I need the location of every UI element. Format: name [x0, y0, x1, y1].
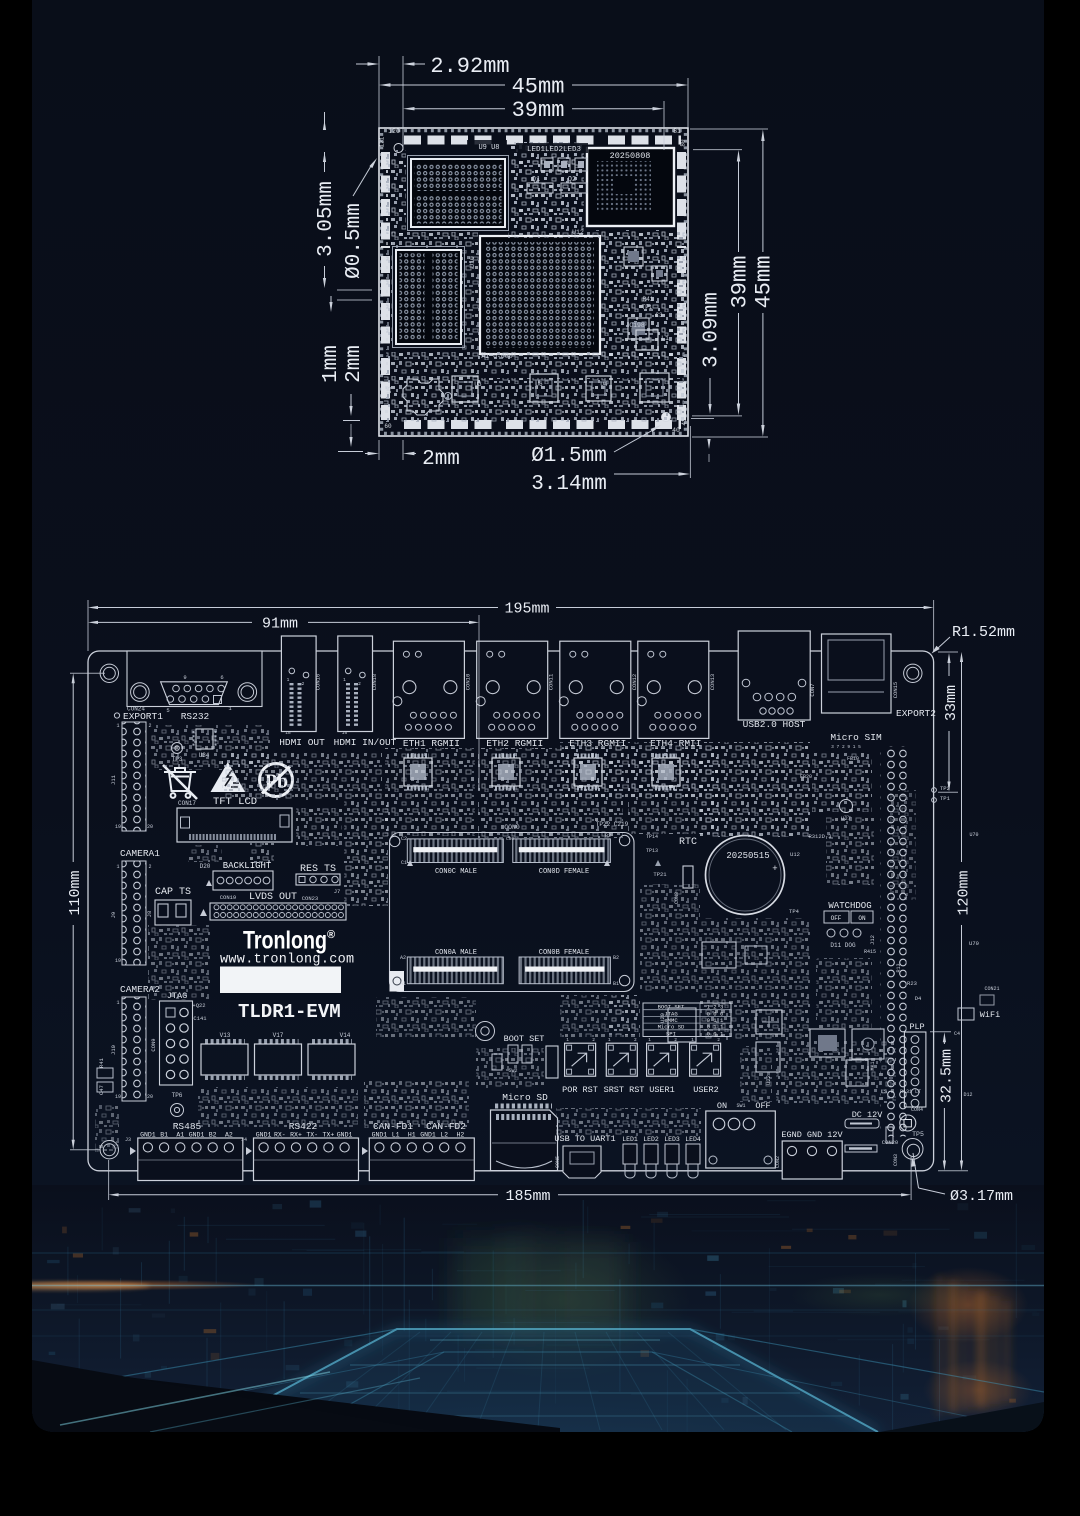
svg-text:ON: ON	[717, 1101, 727, 1111]
svg-text:TP6: TP6	[172, 1092, 183, 1099]
svg-text:BACKLIGHT: BACKLIGHT	[223, 861, 272, 871]
svg-text:81: 81	[673, 128, 681, 135]
svg-text:TX-: TX-	[306, 1132, 318, 1139]
svg-text:SW1: SW1	[736, 1103, 745, 1109]
svg-text:20: 20	[147, 824, 153, 830]
svg-text:TP4: TP4	[789, 908, 800, 915]
svg-text:U12: U12	[572, 229, 584, 236]
svg-text:V14: V14	[340, 1032, 351, 1039]
svg-text:EGND GND 12V: EGND GND 12V	[781, 1130, 843, 1140]
svg-text:18: 18	[285, 730, 291, 736]
svg-text:D11 DOG: D11 DOG	[830, 942, 856, 949]
svg-text:R131 LT: R131 LT	[900, 1089, 921, 1095]
svg-text:Q1: Q1	[532, 176, 540, 184]
svg-text:TP13: TP13	[646, 848, 658, 854]
svg-text:60: 60	[384, 423, 392, 430]
svg-text:1: 1	[648, 1037, 651, 1043]
svg-text:CON10: CON10	[464, 674, 471, 691]
svg-text:A2: A2	[225, 1132, 233, 1139]
svg-text:195mm: 195mm	[504, 601, 549, 618]
svg-text:EXPORT1: EXPORT1	[123, 711, 163, 722]
svg-text:121: 121	[379, 136, 386, 147]
svg-text:6: 6	[220, 674, 223, 681]
svg-text:A1 0-000: A1 0-000	[481, 353, 512, 360]
svg-text:TP14: TP14	[646, 834, 658, 840]
svg-text:B1: B1	[160, 1132, 168, 1139]
svg-text:45mm: 45mm	[752, 256, 777, 309]
svg-text:GND1: GND1	[372, 1132, 388, 1139]
svg-text:Tronlong: Tronlong	[243, 927, 327, 955]
svg-text:U6: U6	[535, 381, 543, 388]
svg-text:U22: U22	[765, 1075, 772, 1085]
svg-text:2: 2	[358, 681, 361, 687]
svg-text:POR RST: POR RST	[562, 1085, 598, 1095]
svg-text:CAMERA1: CAMERA1	[120, 848, 160, 859]
svg-text:L2: L2	[440, 1132, 448, 1139]
svg-text:C2: C2	[401, 836, 407, 842]
svg-text:J11: J11	[110, 774, 117, 785]
svg-text:FB10: FB10	[847, 756, 859, 762]
svg-text:RX-: RX-	[274, 1132, 286, 1139]
svg-text:2mm: 2mm	[422, 448, 460, 471]
svg-text:185mm: 185mm	[505, 1188, 550, 1205]
svg-text:19: 19	[115, 824, 121, 830]
svg-text:Micro SD: Micro SD	[502, 1092, 548, 1103]
svg-text:CAP TS: CAP TS	[155, 887, 191, 898]
svg-text:CON5: CON5	[555, 1156, 561, 1168]
svg-text:CON12: CON12	[631, 674, 638, 691]
svg-text:LS: LS	[881, 1088, 888, 1095]
svg-text:U9 U8: U9 U8	[478, 144, 499, 152]
svg-text:CON13: CON13	[709, 674, 716, 691]
svg-text:CON21: CON21	[984, 986, 999, 992]
svg-text:CON18: CON18	[371, 674, 378, 691]
svg-text:D12: D12	[963, 1092, 972, 1098]
svg-text:1: 1	[116, 1000, 119, 1006]
svg-text:CON16: CON16	[315, 674, 322, 691]
svg-text:U4: U4	[600, 381, 608, 388]
svg-text:3 7 2 9 1 5: 3 7 2 9 1 5	[831, 744, 861, 750]
svg-text:H1: H1	[408, 1132, 416, 1139]
svg-text:B2: B2	[613, 955, 619, 961]
svg-text:RES TS: RES TS	[300, 864, 336, 875]
svg-text:GND1: GND1	[140, 1132, 156, 1139]
svg-text:CON19: CON19	[220, 894, 237, 901]
svg-text:GND1: GND1	[337, 1132, 353, 1139]
svg-text:CON4: CON4	[911, 1107, 923, 1113]
svg-text:V17: V17	[273, 1032, 284, 1039]
svg-text:J4: J4	[241, 1137, 247, 1143]
svg-text:Micro SIM: Micro SIM	[830, 732, 882, 743]
svg-text:J10: J10	[110, 1045, 117, 1055]
svg-text:1: 1	[343, 677, 346, 683]
svg-text:D20: D20	[200, 863, 211, 870]
svg-text:R41: R41	[643, 296, 654, 303]
svg-text:U3: U3	[474, 381, 482, 388]
svg-text:LED4: LED4	[685, 1136, 701, 1143]
svg-text:20250515: 20250515	[726, 851, 769, 861]
svg-text:LED1: LED1	[622, 1136, 638, 1143]
svg-text:H2: H2	[456, 1132, 464, 1139]
svg-text:CON17: CON17	[178, 800, 196, 807]
svg-text:HDMI IN/OUT: HDMI IN/OUT	[334, 737, 397, 748]
svg-text:Ø1.5mm: Ø1.5mm	[531, 445, 607, 468]
svg-text:www.tronlong.com: www.tronlong.com	[220, 953, 354, 968]
svg-text:80: 80	[680, 139, 687, 147]
svg-text:U10: U10	[469, 256, 476, 268]
svg-text:USER1: USER1	[649, 1085, 675, 1095]
svg-text:B1: B1	[613, 981, 619, 987]
svg-text:19: 19	[115, 1094, 121, 1100]
svg-text:L1: L1	[392, 1132, 400, 1139]
svg-text:USB2.0 HOST: USB2.0 HOST	[743, 719, 806, 730]
svg-text:L1: L1	[661, 335, 669, 342]
svg-text:CON0C MALE: CON0C MALE	[435, 868, 477, 876]
svg-text:CON23: CON23	[302, 895, 319, 902]
svg-text:LVDS OUT: LVDS OUT	[249, 892, 297, 903]
svg-text:A2: A2	[400, 955, 406, 961]
svg-text:U70: U70	[969, 832, 978, 838]
svg-text:R1.52mm: R1.52mm	[952, 624, 1015, 641]
svg-text:9: 9	[183, 674, 186, 681]
svg-text:CON9: CON9	[150, 1038, 157, 1051]
svg-text:CON11: CON11	[548, 673, 555, 690]
svg-text:3.14mm: 3.14mm	[531, 473, 607, 496]
svg-text:TP21: TP21	[653, 871, 667, 878]
svg-text:16: 16	[342, 730, 348, 736]
svg-text:MK1: MK1	[870, 1061, 876, 1070]
svg-text:1: 1	[116, 864, 119, 870]
svg-text:5: 5	[166, 707, 169, 714]
svg-text:2: 2	[592, 1037, 595, 1043]
svg-text:C198: C198	[629, 322, 645, 329]
svg-text:20250808: 20250808	[610, 151, 651, 161]
svg-text:40: 40	[672, 427, 680, 434]
svg-text:41: 41	[681, 418, 688, 426]
svg-text:R23: R23	[907, 980, 917, 987]
svg-text:USER2: USER2	[693, 1085, 719, 1095]
svg-text:R41: R41	[98, 1057, 105, 1068]
svg-text:ETH1 RGMII: ETH1 RGMII	[403, 738, 460, 749]
svg-text:U70: U70	[969, 940, 979, 947]
svg-text:19: 19	[115, 958, 121, 964]
svg-text:OFF: OFF	[831, 915, 842, 922]
svg-text:U27: U27	[841, 815, 851, 822]
svg-text:120: 120	[388, 128, 400, 135]
svg-text:+Q22: +Q22	[192, 1002, 205, 1009]
svg-text:CON0A MALE: CON0A MALE	[435, 949, 477, 957]
svg-text:LED1LED2LED3: LED1LED2LED3	[527, 146, 582, 154]
svg-text:LED2: LED2	[643, 1136, 659, 1143]
svg-text:Q2: Q2	[568, 176, 576, 184]
svg-text:1: 1	[116, 723, 119, 729]
svg-text:2: 2	[302, 681, 305, 687]
svg-text:D4: D4	[915, 995, 922, 1002]
svg-text:1mm: 1mm	[320, 345, 343, 383]
svg-text:BOOT SET: BOOT SET	[504, 1034, 545, 1044]
svg-text:J8: J8	[146, 911, 153, 918]
svg-text:TP5: TP5	[912, 1131, 924, 1138]
svg-text:V13: V13	[220, 1032, 231, 1039]
svg-text:J7: J7	[334, 888, 341, 895]
svg-text:WATCHDOG: WATCHDOG	[828, 901, 871, 911]
svg-text:C1: C1	[401, 860, 407, 866]
svg-text:GND1: GND1	[189, 1132, 205, 1139]
svg-text:C4: C4	[954, 1031, 960, 1037]
svg-text:CON0D FEMALE: CON0D FEMALE	[539, 868, 589, 876]
svg-text:GND1: GND1	[256, 1132, 272, 1139]
svg-text:B2: B2	[209, 1132, 217, 1139]
svg-text:SRST RST: SRST RST	[604, 1085, 645, 1095]
svg-text:A1: A1	[176, 1132, 184, 1139]
svg-text:2: 2	[634, 1037, 637, 1043]
svg-text:U12: U12	[790, 851, 800, 858]
svg-text:1: 1	[608, 1037, 611, 1043]
svg-text:ETH2 RGMII: ETH2 RGMII	[486, 738, 543, 749]
svg-text:Ø0.5mm: Ø0.5mm	[343, 203, 366, 279]
svg-text:32.5mm: 32.5mm	[939, 1049, 956, 1103]
svg-text:TP1: TP1	[642, 304, 653, 311]
svg-text:C141: C141	[193, 1015, 207, 1022]
svg-text:20: 20	[147, 1094, 153, 1100]
svg-text:RS485: RS485	[173, 1121, 202, 1132]
svg-text:®: ®	[327, 929, 335, 941]
svg-text:TLDR1-EVM: TLDR1-EVM	[238, 1001, 341, 1023]
svg-text:1: 1	[287, 677, 290, 683]
svg-text:GND1: GND1	[420, 1132, 436, 1139]
svg-text:R415: R415	[864, 949, 876, 955]
svg-text:33mm: 33mm	[943, 685, 960, 721]
svg-text:RX+: RX+	[290, 1132, 302, 1139]
svg-text:120mm: 120mm	[956, 870, 973, 915]
svg-text:2.92mm: 2.92mm	[430, 54, 509, 79]
svg-text:1: 1	[566, 1037, 569, 1043]
svg-text:OFF: OFF	[755, 1101, 770, 1111]
svg-text:TX+: TX+	[323, 1132, 335, 1139]
svg-text:C47: C47	[98, 1085, 105, 1095]
svg-text:2mm: 2mm	[343, 345, 366, 383]
svg-text:Ø3.17mm: Ø3.17mm	[950, 1188, 1013, 1205]
svg-text:FB20: FB20	[800, 774, 812, 780]
svg-text:RS232: RS232	[181, 711, 210, 722]
svg-text:45mm: 45mm	[512, 75, 565, 100]
svg-text:3.05mm: 3.05mm	[315, 181, 338, 257]
svg-text:J3: J3	[125, 1137, 131, 1143]
svg-text:PLP: PLP	[909, 1022, 924, 1032]
svg-text:39mm: 39mm	[512, 98, 565, 123]
svg-text:3.09mm: 3.09mm	[701, 292, 724, 368]
svg-text:J9: J9	[110, 912, 117, 919]
svg-text:J12: J12	[869, 935, 876, 945]
svg-text:LED3: LED3	[664, 1136, 680, 1143]
svg-text:110mm: 110mm	[67, 870, 84, 915]
svg-text:ON: ON	[858, 915, 866, 922]
svg-text:CON3: CON3	[893, 1154, 899, 1166]
svg-text:91mm: 91mm	[262, 615, 298, 632]
svg-text:CON0B FEMALE: CON0B FEMALE	[539, 949, 589, 957]
svg-text:U5: U5	[386, 386, 393, 394]
svg-text:39mm: 39mm	[728, 256, 753, 309]
svg-text:CON15: CON15	[892, 682, 899, 699]
svg-text:R13: R13	[896, 963, 902, 972]
svg-text:C3: C3	[655, 312, 663, 319]
svg-text:2: 2	[148, 864, 151, 870]
svg-text:+: +	[772, 864, 777, 874]
svg-text:RTC: RTC	[679, 837, 697, 848]
svg-text:EXPORT2: EXPORT2	[896, 708, 936, 719]
svg-text:R312D-3: R312D-3	[808, 833, 831, 840]
svg-text:A1: A1	[400, 981, 406, 987]
svg-text:U20: U20	[659, 1013, 666, 1023]
svg-text:TP1: TP1	[940, 795, 951, 802]
svg-text:HDMI OUT: HDMI OUT	[279, 737, 325, 748]
svg-text:WiFi: WiFi	[980, 1010, 1000, 1020]
svg-text:CON2: CON2	[775, 1156, 781, 1168]
svg-text:CON7: CON7	[809, 683, 816, 696]
